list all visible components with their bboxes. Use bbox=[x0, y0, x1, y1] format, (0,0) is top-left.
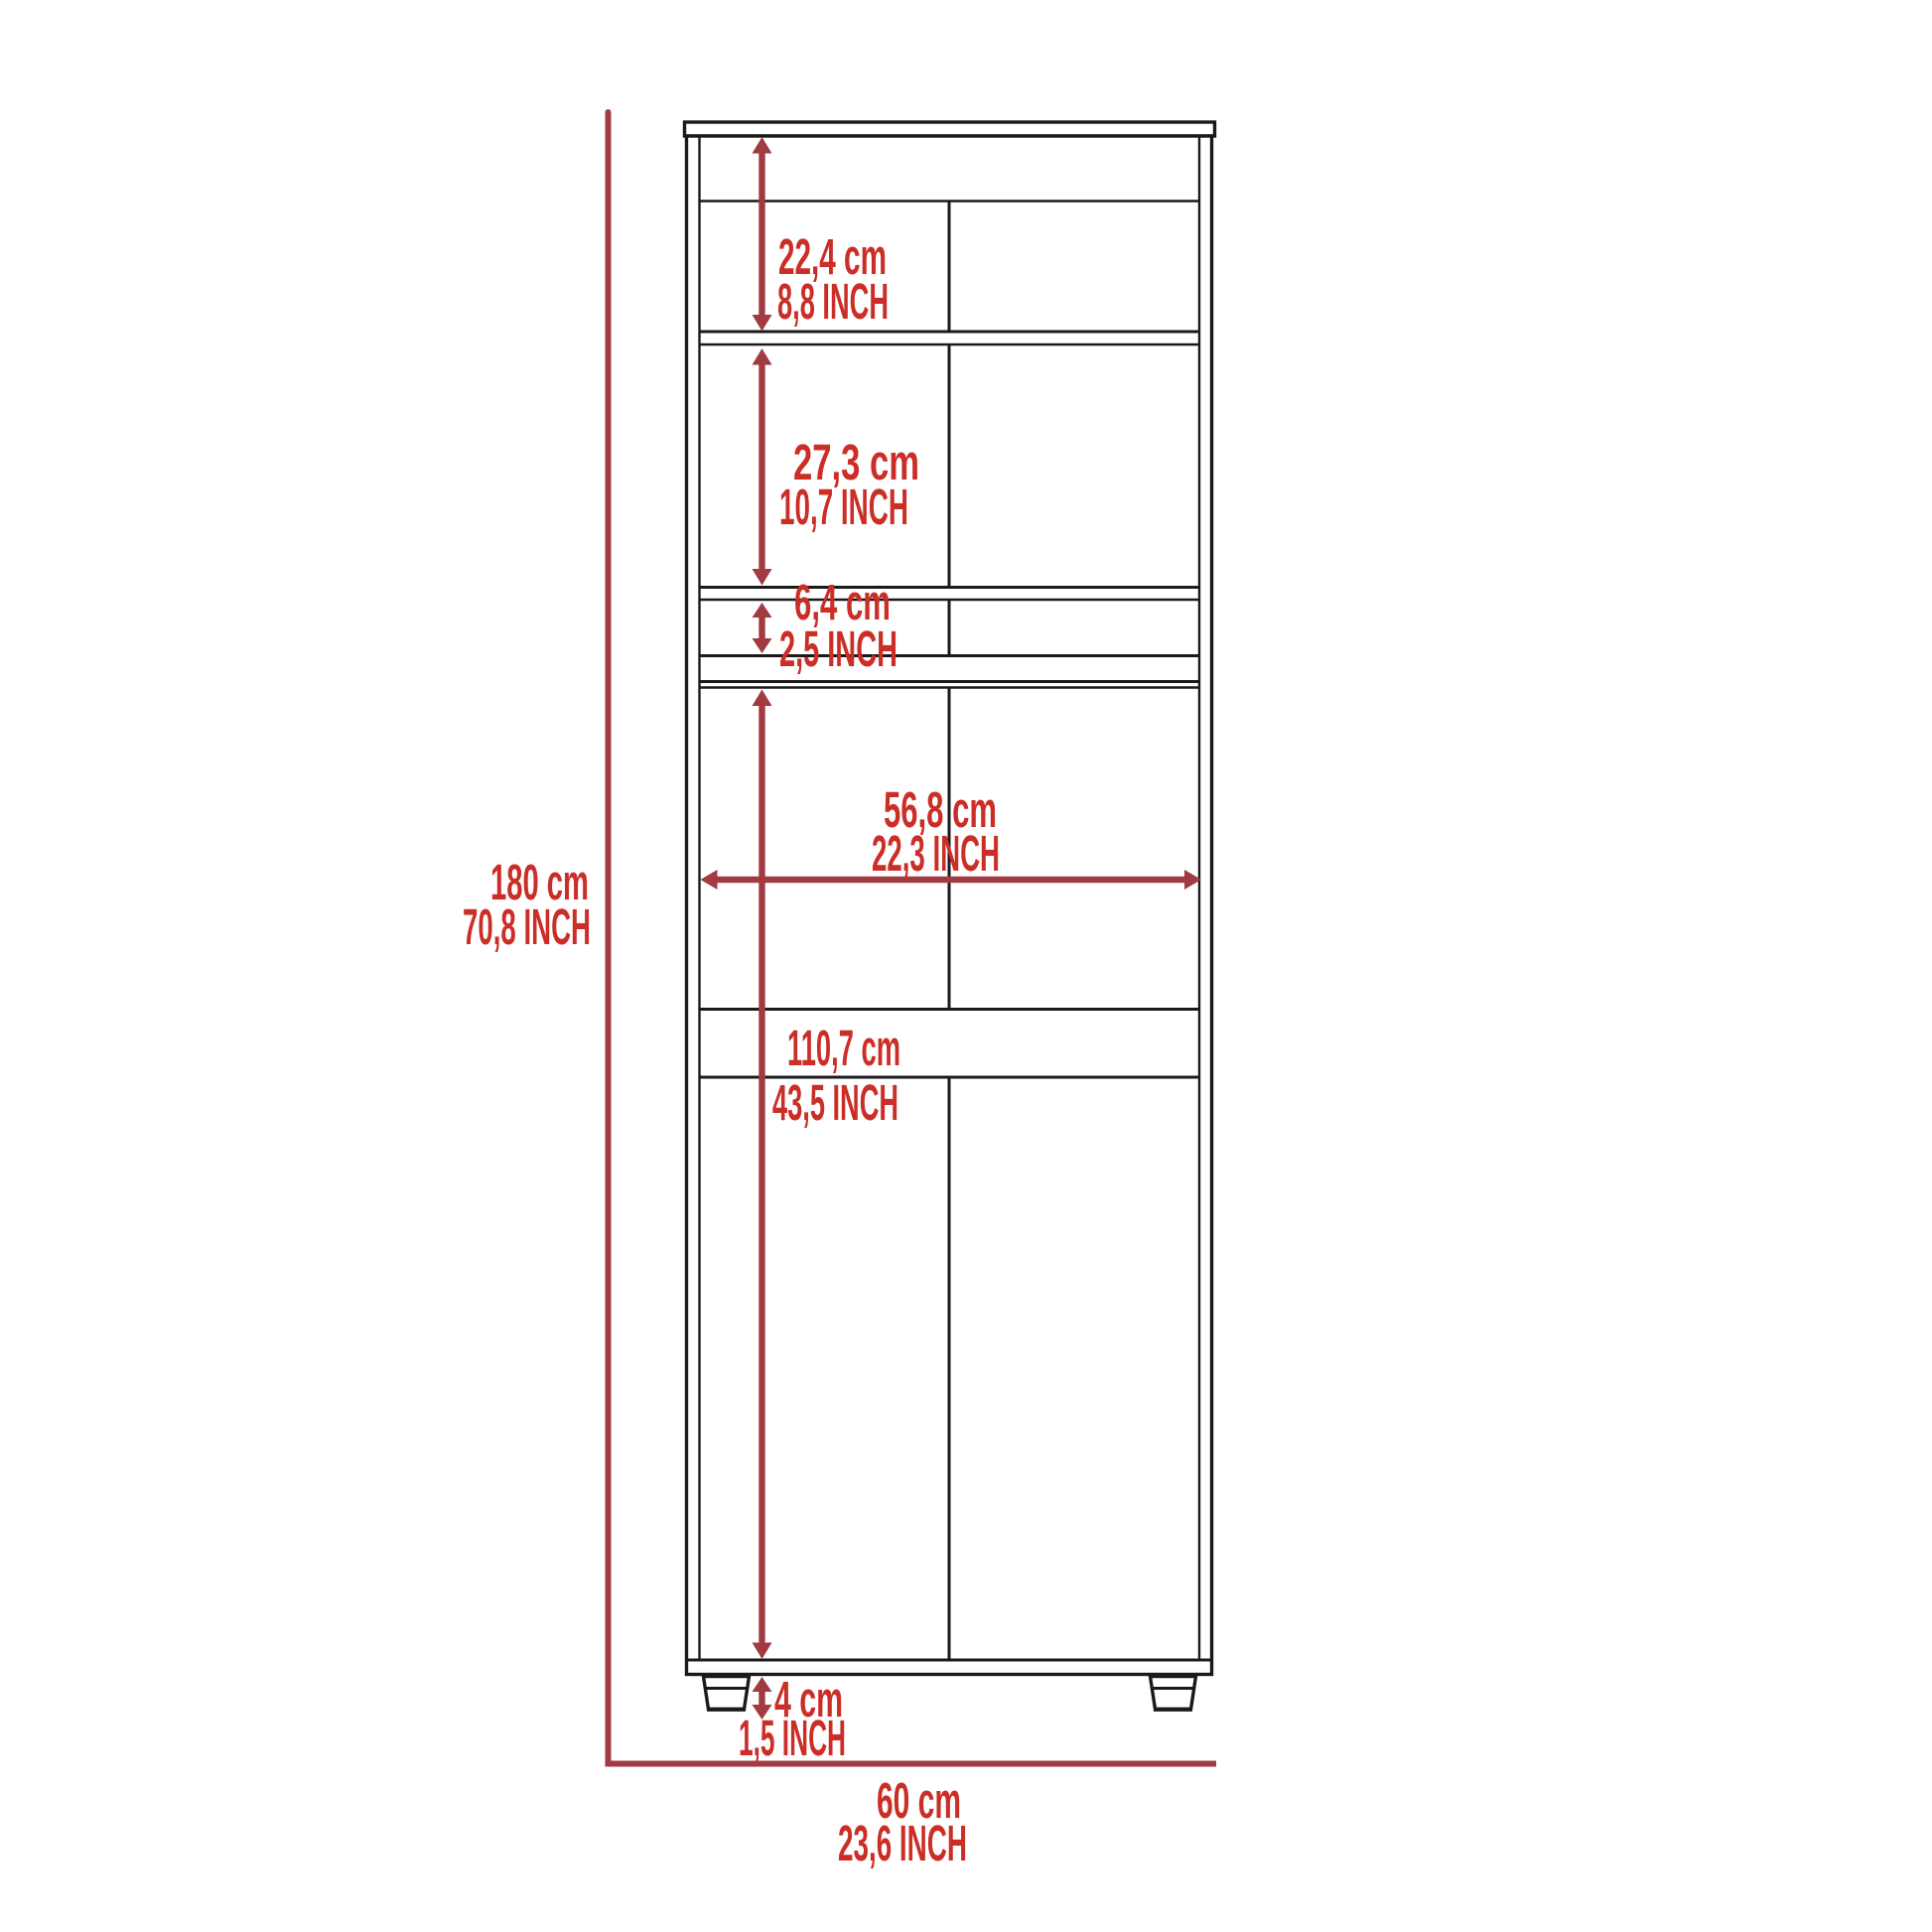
svg-text:43,5 INCH: 43,5 INCH bbox=[772, 1074, 898, 1131]
svg-text:10,7 INCH: 10,7 INCH bbox=[779, 479, 908, 535]
svg-text:22,3 INCH: 22,3 INCH bbox=[872, 825, 1000, 882]
svg-text:70,8 INCH: 70,8 INCH bbox=[463, 898, 591, 955]
svg-text:1,5 INCH: 1,5 INCH bbox=[739, 1710, 846, 1766]
svg-text:8,8 INCH: 8,8 INCH bbox=[777, 273, 889, 330]
svg-text:23,6 INCH: 23,6 INCH bbox=[838, 1815, 967, 1871]
svg-text:110,7 cm: 110,7 cm bbox=[787, 1020, 900, 1076]
svg-text:2,5 INCH: 2,5 INCH bbox=[779, 621, 897, 677]
